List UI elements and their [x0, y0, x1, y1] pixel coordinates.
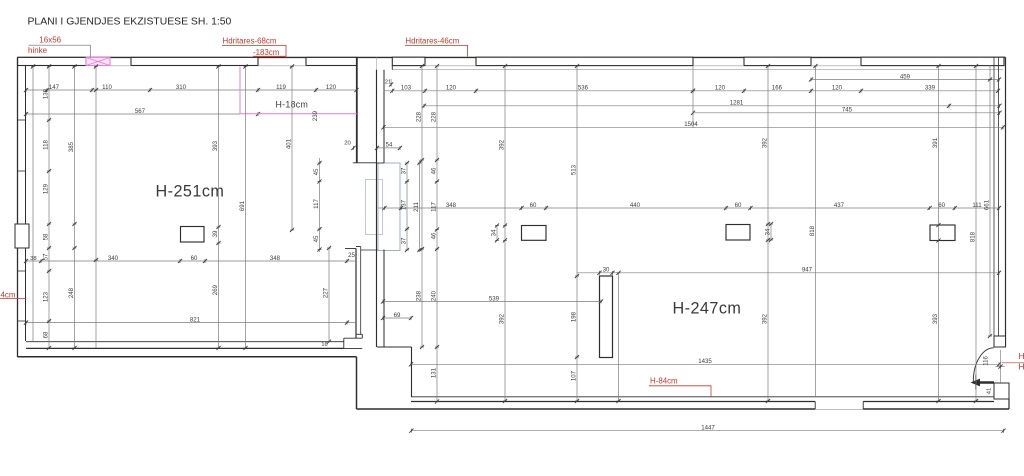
svg-text:818: 818	[970, 231, 977, 242]
svg-text:34: 34	[765, 228, 772, 235]
svg-text:392: 392	[762, 313, 769, 324]
svg-text:60: 60	[735, 202, 742, 209]
svg-text:PLANI I GJENDJES EKZISTUESE SH: PLANI I GJENDJES EKZISTUESE SH. 1:50	[28, 17, 232, 28]
svg-text:120: 120	[446, 85, 457, 92]
svg-text:513: 513	[571, 164, 578, 175]
svg-text:437: 437	[834, 202, 845, 209]
svg-text:818: 818	[809, 225, 816, 236]
svg-text:310: 310	[176, 84, 187, 91]
svg-text:60: 60	[530, 202, 537, 209]
svg-text:269: 269	[212, 284, 219, 295]
svg-text:440: 440	[630, 202, 641, 209]
svg-text:947: 947	[802, 267, 813, 274]
svg-text:39: 39	[212, 230, 219, 237]
svg-text:348: 348	[270, 255, 281, 262]
svg-text:239: 239	[312, 110, 319, 121]
svg-text:103: 103	[401, 85, 412, 92]
svg-text:691: 691	[239, 200, 246, 211]
svg-text:401: 401	[286, 138, 293, 149]
svg-text:H-: H-	[1019, 351, 1024, 361]
svg-text:238: 238	[416, 290, 423, 301]
svg-text:392: 392	[499, 313, 506, 324]
svg-text:120: 120	[832, 85, 843, 92]
svg-text:248: 248	[68, 287, 75, 298]
svg-text:60: 60	[938, 202, 945, 209]
svg-text:69: 69	[394, 312, 401, 319]
svg-text:228: 228	[416, 111, 423, 122]
svg-text:567: 567	[135, 108, 146, 115]
svg-text:37: 37	[401, 237, 408, 244]
svg-text:166: 166	[772, 85, 783, 92]
svg-text:hinke: hinke	[28, 46, 48, 55]
svg-text:340: 340	[108, 255, 119, 262]
svg-text:228: 228	[431, 111, 438, 122]
svg-text:68: 68	[43, 331, 50, 338]
svg-text:117: 117	[431, 202, 438, 212]
svg-text:117: 117	[313, 199, 320, 209]
svg-text:30: 30	[603, 267, 610, 274]
svg-text:120: 120	[715, 85, 726, 92]
svg-text:H-251cm: H-251cm	[156, 183, 225, 201]
svg-text:16: 16	[321, 342, 327, 348]
svg-text:1447: 1447	[701, 425, 715, 432]
svg-text:536: 536	[578, 85, 589, 92]
svg-text:4cm: 4cm	[1, 291, 16, 300]
svg-text:385: 385	[68, 141, 75, 152]
svg-text:129: 129	[43, 183, 50, 194]
svg-text:Hdritares-46cm: Hdritares-46cm	[405, 37, 459, 46]
svg-text:34: 34	[491, 229, 498, 236]
svg-text:137: 137	[401, 199, 408, 210]
svg-text:-183cm: -183cm	[253, 48, 280, 57]
svg-text:38: 38	[30, 256, 37, 262]
svg-text:37: 37	[401, 167, 408, 174]
svg-text:60: 60	[191, 255, 198, 262]
svg-text:198: 198	[571, 311, 578, 322]
svg-text:348: 348	[446, 202, 457, 209]
svg-text:54: 54	[386, 142, 393, 149]
svg-text:118: 118	[43, 140, 50, 150]
svg-text:393: 393	[932, 313, 939, 324]
svg-text:45: 45	[313, 235, 320, 242]
svg-text:119: 119	[276, 84, 286, 91]
svg-text:123: 123	[43, 291, 50, 302]
svg-text:41: 41	[987, 388, 993, 395]
svg-text:147: 147	[49, 84, 60, 91]
svg-text:111: 111	[972, 202, 982, 209]
svg-text:H-84cm: H-84cm	[650, 376, 678, 385]
svg-text:16x56: 16x56	[39, 35, 61, 44]
svg-text:120: 120	[326, 84, 337, 91]
svg-text:392: 392	[499, 139, 506, 150]
svg-text:46: 46	[431, 232, 438, 239]
svg-text:110: 110	[102, 84, 112, 91]
svg-text:Hdritares-68cm: Hdritares-68cm	[223, 37, 277, 46]
svg-text:138: 138	[43, 88, 50, 99]
svg-text:107: 107	[571, 370, 578, 381]
svg-text:661: 661	[984, 199, 991, 210]
svg-text:58: 58	[43, 233, 50, 240]
svg-text:821: 821	[190, 316, 201, 323]
svg-text:116: 116	[983, 356, 990, 366]
svg-text:211: 211	[413, 202, 420, 212]
svg-text:25: 25	[348, 252, 355, 259]
svg-text:393: 393	[212, 140, 219, 151]
svg-text:745: 745	[842, 107, 853, 114]
svg-text:459: 459	[900, 73, 911, 80]
svg-text:391: 391	[932, 137, 939, 148]
svg-text:539: 539	[489, 295, 500, 302]
svg-text:H-247cm: H-247cm	[673, 300, 742, 318]
svg-text:240: 240	[431, 290, 438, 301]
svg-text:131: 131	[431, 367, 438, 378]
svg-text:46: 46	[431, 167, 438, 174]
svg-text:20: 20	[344, 141, 351, 147]
svg-text:45: 45	[313, 168, 320, 175]
svg-text:392: 392	[762, 137, 769, 148]
svg-text:227: 227	[323, 287, 330, 298]
svg-text:339: 339	[925, 85, 936, 92]
svg-text:1281: 1281	[730, 100, 744, 107]
svg-text:1504: 1504	[684, 121, 698, 128]
svg-text:1435: 1435	[698, 358, 712, 365]
svg-text:57: 57	[43, 253, 50, 260]
